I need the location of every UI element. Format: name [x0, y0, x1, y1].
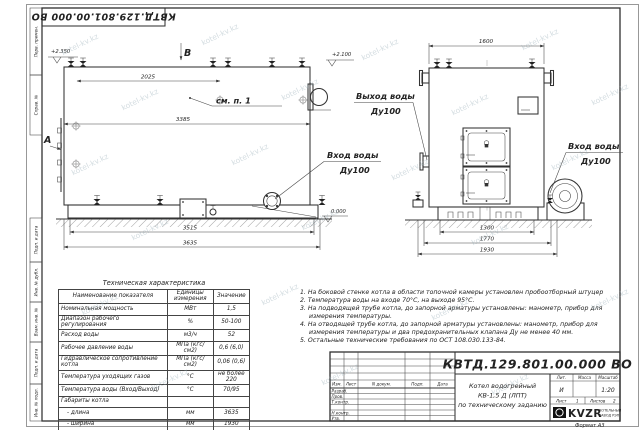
spec-header: Значение: [213, 290, 249, 304]
water-in-front-dn: Ду100: [580, 156, 611, 166]
stamp-label: Подп. и дата: [34, 225, 39, 254]
valve-icon: [225, 58, 232, 67]
spec-cell: МВт: [167, 304, 213, 316]
water-out-dn: Ду100: [370, 106, 401, 116]
callout-see-note-1: см. п. 1: [216, 96, 251, 106]
spec-cell: Температура уходящих газов: [59, 370, 168, 384]
elev-2350: +2.350: [51, 49, 71, 55]
spec-header: Единицы измерения: [167, 290, 213, 304]
blueprint-page: Перв. примен. Справ. № Подп. и дата Инв.…: [0, 0, 644, 430]
spec-cell: 0,6 (6,0): [213, 342, 249, 356]
spec-cell: %: [167, 316, 213, 330]
spec-cell: Габариты котла: [59, 396, 168, 408]
stamp-label: Взам. инв. №: [34, 307, 39, 336]
spec-row: Гидравлическое сопротивление котлаМПа (к…: [59, 356, 250, 370]
tb-lit-value: И: [559, 387, 564, 394]
spec-row: Номинальная мощностьМВт1,5: [59, 304, 250, 316]
spec-cell: Температура воды (Вход/Выход): [59, 385, 168, 397]
valve-icon: [415, 192, 421, 200]
stamp-label: Инв. № подл.: [34, 388, 39, 417]
spec-cell: МПа (кгс/см2): [167, 342, 213, 356]
tb-col-podp: Подп.: [411, 382, 423, 387]
dim-1770: 1770: [480, 237, 495, 243]
spec-cell: Диапазон рабочего регулирования: [59, 316, 168, 330]
dim-3635: 3635: [183, 241, 198, 247]
spec-cell: - длина: [59, 408, 168, 420]
spec-cell: 0,06 (0,6): [213, 356, 249, 370]
tb-mass-label: Масса: [578, 375, 592, 380]
spec-cell: 52: [213, 330, 249, 342]
tb-sheet-value: 1: [576, 398, 579, 403]
spec-header-row: Наименование показателя Единицы измерени…: [59, 290, 250, 304]
view-letter-B: В: [184, 48, 191, 59]
valve-icon: [529, 59, 536, 68]
dim-1300: 1300: [480, 226, 495, 232]
valve-icon: [299, 58, 306, 67]
front-view: [405, 59, 592, 228]
stamp-label: Подп. и дата: [34, 348, 39, 377]
spec-row: Температура воды (Вход/Выход)°С70/95: [59, 385, 250, 397]
valve-icon: [210, 58, 217, 67]
tb-lit-label: Лит.: [556, 375, 566, 380]
spec-cell: Номинальная мощность: [59, 304, 168, 316]
spec-table: Наименование показателя Единицы измерени…: [58, 289, 250, 430]
spec-cell: МПа (кгс/см2): [167, 356, 213, 370]
tb-col-list: Лист: [345, 382, 357, 387]
kvzr-logo-text: KVZR: [568, 408, 602, 420]
tb-row-prov: Пров.: [332, 394, 344, 399]
kvzr-logo-caption-1: КОТЕЛЬНЫЙ: [599, 408, 622, 413]
tb-name-2: КВ-1,5 Д (ЛПТ): [478, 392, 527, 400]
valve-icon: [269, 58, 276, 67]
elev-2100: +2.100: [332, 52, 352, 58]
spec-cell: Рабочее давление воды: [59, 342, 168, 356]
valve-icon: [446, 59, 453, 68]
spec-cell: [167, 396, 213, 408]
stamp-label: Перв. примен.: [34, 26, 39, 57]
kvzr-logo: KVZR КОТЕЛЬНЫЙ ЗАВОД РЭП: [553, 407, 622, 420]
tb-col-data: Дата: [436, 382, 448, 387]
spec-row: - длинамм3635: [59, 408, 250, 420]
valve-icon: [68, 58, 75, 67]
spec-cell: Расход воды: [59, 330, 168, 342]
dim-3385: 3385: [176, 117, 191, 123]
stamp-column: Перв. примен. Справ. № Подп. и дата Инв.…: [30, 8, 42, 421]
valve-icon: [80, 58, 87, 67]
tb-scale-label: Масштаб: [598, 375, 618, 380]
note-item: 3. На подводящей трубе котла, до запорно…: [300, 305, 622, 321]
dim-2025: 2025: [141, 75, 156, 81]
spec-cell: - ширина: [59, 420, 168, 430]
doc-number-top: КВТД.129.801.00.000 ВО: [31, 11, 176, 22]
spec-cell: °С: [167, 370, 213, 384]
spec-cell: 3635: [213, 408, 249, 420]
kvzr-logo-caption-2: ЗАВОД РЭП: [599, 414, 620, 418]
spec-cell: °С: [167, 385, 213, 397]
water-in-front-label: Вход воды: [568, 141, 620, 151]
spec-cell: м3/ч: [167, 330, 213, 342]
note-item: 4. На отводящей трубе котла, до запорной…: [300, 321, 622, 337]
spec-row: Расход водым3/ч52: [59, 330, 250, 342]
spec-cell: 50-100: [213, 316, 249, 330]
valve-icon: [434, 59, 441, 68]
spec-table-block: Техническая характеристика Наименование …: [58, 279, 250, 430]
spec-row: Диапазон рабочего регулирования%50-100: [59, 316, 250, 330]
fan-icon: [547, 179, 584, 220]
inlet-flange-icon: [264, 193, 281, 210]
view-letter-A: А: [43, 135, 51, 146]
spec-row: Габариты котла: [59, 396, 250, 408]
spec-cell: 1930: [213, 420, 249, 430]
spec-cell: [213, 396, 249, 408]
tb-sheet-label: Лист: [555, 398, 567, 403]
tb-row-nkontr: Н.контр.: [332, 410, 350, 415]
spec-cell: не более 220: [213, 370, 249, 384]
stamp-label: Справ. №: [34, 94, 39, 115]
tb-name-3: по техническому заданию: [458, 401, 547, 409]
tb-row-razrab: Разраб.: [332, 388, 348, 393]
note-item: 5. Остальные технические требования по О…: [300, 337, 622, 345]
elev-0000: 0.000: [331, 209, 347, 215]
stamp-label: Инв. № дубл.: [34, 268, 39, 297]
spec-table-title: Техническая характеристика: [58, 279, 250, 287]
valve-icon: [319, 196, 326, 206]
spec-row: Температура уходящих газов°Сне более 220: [59, 370, 250, 384]
spec-cell: 1,5: [213, 304, 249, 316]
tb-col-ndok: N докум.: [372, 382, 391, 387]
dim-1930: 1930: [480, 248, 495, 254]
tb-doc-number: КВТД.129.801.00.000 ВО: [443, 357, 633, 372]
side-view: [56, 58, 332, 227]
spec-cell: мм: [167, 420, 213, 430]
spec-cell: мм: [167, 408, 213, 420]
dim-3515: 3515: [183, 226, 198, 232]
note-item: 1. На боковой стенке котла в области топ…: [300, 289, 622, 297]
spec-header: Наименование показателя: [59, 290, 168, 304]
title-block: Изм. Лист N докум. Подп. Дата Разраб. Пр…: [330, 352, 632, 421]
tb-name-1: Котел водогрейный: [469, 382, 536, 390]
doc-number-top-box: КВТД.129.801.00.000 ВО: [31, 8, 176, 26]
water-in-side-label: Вход воды: [327, 150, 379, 160]
spec-cell: Гидравлическое сопротивление котла: [59, 356, 168, 370]
note-item: 2. Температура воды на входе 70°С, на вы…: [300, 297, 622, 305]
water-in-side-dn: Ду100: [339, 165, 370, 175]
tb-row-utv: Утв.: [332, 416, 341, 421]
tb-row-tkontr: Т.контр.: [332, 399, 350, 404]
spec-row: Рабочее давление водыМПа (кгс/см2)0,6 (6…: [59, 342, 250, 356]
tb-col-izm: Изм.: [332, 382, 342, 387]
spec-cell: 70/95: [213, 385, 249, 397]
tb-sheets-label: Листов: [589, 398, 606, 403]
spec-row: - ширинамм1930: [59, 420, 250, 430]
valve-icon: [210, 206, 216, 216]
tb-scale-value: 1:20: [601, 387, 615, 394]
dim-1600: 1600: [479, 39, 494, 45]
notes-block: 1. На боковой стенке котла в области топ…: [300, 289, 622, 345]
format-label: Формат А3: [575, 423, 605, 429]
water-out-label: Выход воды: [356, 91, 415, 101]
tb-sheets-value: 2: [613, 398, 616, 403]
